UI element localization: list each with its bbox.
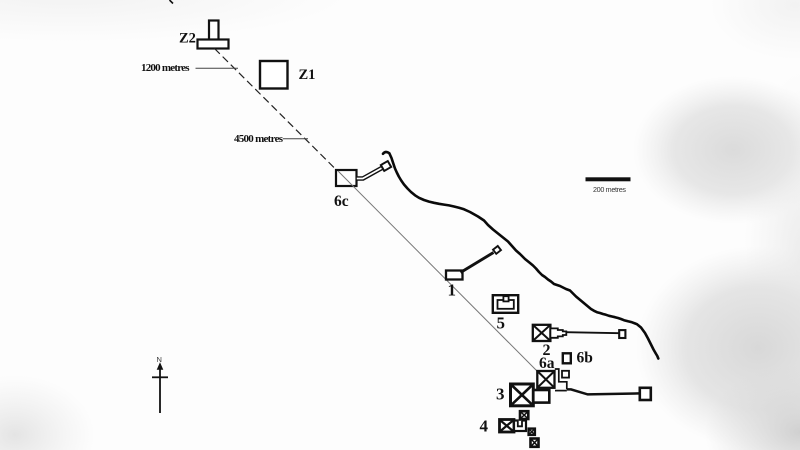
svg-text:5: 5 xyxy=(497,314,506,333)
svg-text:4: 4 xyxy=(480,417,489,436)
svg-text:6a: 6a xyxy=(539,355,555,372)
svg-text:Z2: Z2 xyxy=(179,31,196,47)
svg-text:3: 3 xyxy=(496,385,505,404)
svg-text:1: 1 xyxy=(448,281,457,300)
svg-text:4500 metres: 4500 metres xyxy=(234,133,284,145)
svg-text:200 metres: 200 metres xyxy=(593,185,626,194)
svg-text:N: N xyxy=(157,355,162,364)
svg-text:6c: 6c xyxy=(334,193,349,210)
svg-text:6b: 6b xyxy=(577,350,593,367)
svg-text:1200 metres: 1200 metres xyxy=(141,62,190,74)
svg-text:Z1: Z1 xyxy=(299,67,316,83)
